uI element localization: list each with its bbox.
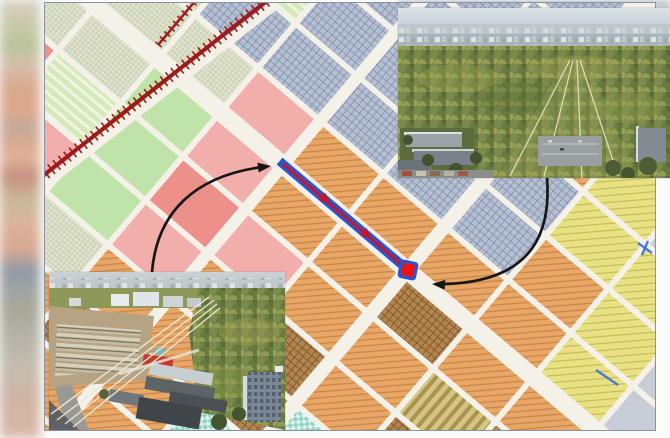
aerial-photo-street-industrial [49,272,285,430]
blurred-left-margin [0,0,40,438]
collage-canvas [0,0,670,438]
aerial-photo-street-art [49,272,285,430]
route-end-marker [399,261,417,279]
right-buildings [636,126,666,162]
aerial-photo-forest-corridor [398,8,670,178]
right-tall-building [243,366,283,422]
parking-lot [538,136,602,166]
garage-row [398,170,494,178]
aerial-photo-forest-art [398,8,670,178]
garage-rows [55,324,141,376]
